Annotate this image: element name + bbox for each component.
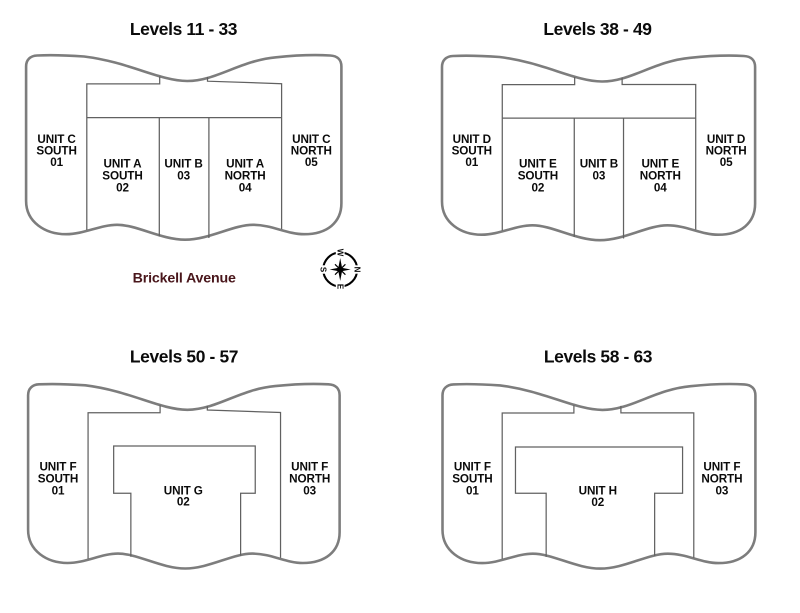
svg-text:01: 01 (50, 156, 63, 169)
svg-text:Brickell Avenue: Brickell Avenue (133, 271, 236, 287)
svg-text:Levels 58 - 63: Levels 58 - 63 (544, 346, 653, 366)
svg-text:01: 01 (465, 156, 478, 169)
svg-text:UNIT B: UNIT B (164, 157, 202, 170)
svg-text:02: 02 (591, 496, 604, 509)
svg-text:03: 03 (177, 170, 190, 183)
svg-text:04: 04 (654, 181, 667, 194)
svg-text:05: 05 (305, 156, 318, 169)
svg-text:03: 03 (592, 170, 605, 183)
svg-text:UNIT B: UNIT B (580, 157, 618, 170)
svg-text:E: E (335, 284, 344, 290)
svg-text:N: N (352, 267, 361, 273)
svg-text:03: 03 (715, 484, 728, 497)
svg-text:05: 05 (720, 156, 733, 169)
svg-text:02: 02 (531, 181, 544, 194)
svg-text:Levels 11 - 33: Levels 11 - 33 (130, 19, 238, 39)
svg-text:02: 02 (177, 496, 190, 509)
svg-text:W: W (335, 249, 344, 257)
svg-text:Levels 50 - 57: Levels 50 - 57 (130, 346, 238, 366)
svg-text:Levels 38 - 49: Levels 38 - 49 (543, 19, 652, 39)
svg-text:04: 04 (239, 181, 252, 194)
svg-text:S: S (318, 267, 327, 273)
svg-text:03: 03 (303, 484, 316, 497)
svg-text:01: 01 (466, 484, 479, 497)
svg-text:02: 02 (116, 181, 129, 194)
svg-text:01: 01 (52, 484, 65, 497)
